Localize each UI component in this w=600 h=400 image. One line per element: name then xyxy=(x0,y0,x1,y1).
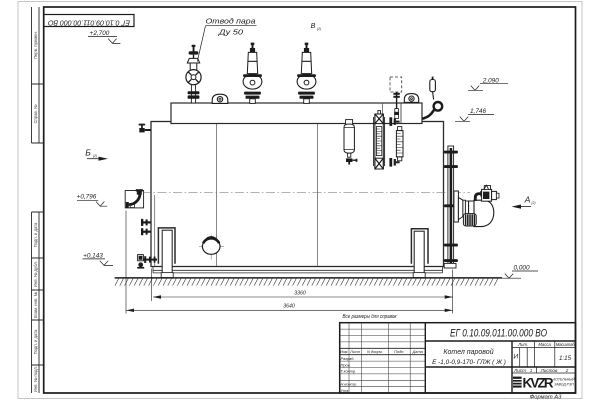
svg-text:ЕГ 0.10.09.011.00.000 ВО: ЕГ 0.10.09.011.00.000 ВО xyxy=(450,328,547,340)
svg-text:Н.контр.: Н.контр. xyxy=(341,382,357,387)
svg-text:Б: Б xyxy=(85,148,91,158)
svg-text:+0,796: +0,796 xyxy=(77,194,97,201)
svg-text:Котел паровой: Котел паровой xyxy=(443,348,493,356)
svg-text:N докум.: N докум. xyxy=(367,349,383,354)
svg-text:Подп. и дата: Подп. и дата xyxy=(33,329,38,354)
svg-text:Масштаб: Масштаб xyxy=(556,342,576,347)
svg-text:Лит.: Лит. xyxy=(517,342,528,347)
svg-text:3640: 3640 xyxy=(283,303,295,309)
svg-text:Все размеры для справок: Все размеры для справок xyxy=(343,314,397,320)
svg-text:Формат А3: Формат А3 xyxy=(530,394,562,400)
svg-text:2: 2 xyxy=(565,368,569,373)
svg-text:(2): (2) xyxy=(531,201,535,205)
svg-text:А: А xyxy=(524,195,531,205)
svg-text:Листов: Листов xyxy=(540,368,558,373)
svg-text:ЗАВОД РЭП: ЗАВОД РЭП xyxy=(554,383,574,387)
svg-text:0,000: 0,000 xyxy=(514,264,530,271)
svg-text:Подп. и дата: Подп. и дата xyxy=(33,222,38,247)
svg-text:И: И xyxy=(513,354,518,361)
svg-text:Отвод пара: Отвод пара xyxy=(206,17,256,26)
svg-text:Дата: Дата xyxy=(412,349,424,354)
svg-text:Утв.: Утв. xyxy=(341,388,350,393)
svg-text:Перв. примен.: Перв. примен. xyxy=(33,31,38,59)
svg-text:Подп.: Подп. xyxy=(394,349,404,354)
svg-text:1: 1 xyxy=(530,368,533,373)
svg-text:ЕГ 0.10.09.011.00.000 ВО: ЕГ 0.10.09.011.00.000 ВО xyxy=(48,19,130,28)
svg-text:Изм.: Изм. xyxy=(340,349,348,354)
svg-text:1:15: 1:15 xyxy=(559,355,572,362)
svg-text:(2): (2) xyxy=(317,27,321,31)
svg-text:(2): (2) xyxy=(93,154,97,158)
svg-text:Е -1,0-0,9-170- ГЛЖ ( Ж ): Е -1,0-0,9-170- ГЛЖ ( Ж ) xyxy=(432,359,506,366)
svg-text:КОТЕЛЬНЫЙ: КОТЕЛЬНЫЙ xyxy=(553,378,575,382)
svg-text:+0,143: +0,143 xyxy=(83,252,103,259)
svg-text:3360: 3360 xyxy=(294,291,306,297)
svg-text:Пров.: Пров. xyxy=(341,362,351,367)
svg-text:+2,700: +2,700 xyxy=(90,30,110,37)
svg-text:1,746: 1,746 xyxy=(470,108,486,115)
svg-text:В: В xyxy=(311,21,316,30)
svg-text:Инв. № подл.: Инв. № подл. xyxy=(33,366,38,392)
svg-text:Ду 50: Ду 50 xyxy=(218,27,244,36)
svg-text:Масса: Масса xyxy=(538,342,551,347)
svg-text:Разраб.: Разраб. xyxy=(341,356,355,361)
svg-text:Справ. №: Справ. № xyxy=(33,104,38,124)
svg-text:KVZR: KVZR xyxy=(523,376,554,391)
svg-text:Т.контр.: Т.контр. xyxy=(341,369,357,374)
svg-text:2,090: 2,090 xyxy=(482,77,499,84)
svg-text:Инв. № дубл.: Инв. № дубл. xyxy=(33,261,38,287)
svg-text:Лист: Лист xyxy=(513,368,526,373)
svg-text:Взам. инв. №: Взам. инв. № xyxy=(33,292,38,318)
svg-text:Лист: Лист xyxy=(349,349,361,354)
